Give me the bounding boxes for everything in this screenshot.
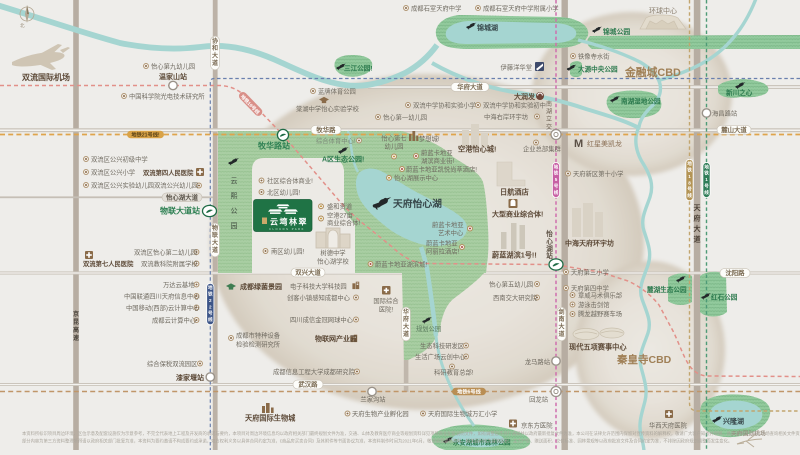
svg-text:蔚蓝卡地亚: 蔚蓝卡地亚 — [426, 239, 458, 248]
svg-text:联: 联 — [212, 231, 218, 239]
svg-text:树德中学: 树德中学 — [320, 248, 345, 257]
svg-text:速: 速 — [73, 334, 79, 342]
svg-text:蔚蓝卡地亚: 蔚蓝卡地亚 — [432, 220, 464, 229]
svg-text:怡心第五幼儿园: 怡心第五幼儿园 — [489, 280, 533, 289]
svg-text:大: 大 — [212, 52, 218, 60]
svg-text:综合体育中心!: 综合体育中心! — [316, 136, 356, 145]
svg-text:中国科学院光电技术研究所: 中国科学院光电技术研究所 — [129, 92, 205, 101]
svg-text:号: 号 — [687, 186, 692, 193]
svg-text:双流中学协和实验初中: 双流中学协和实验初中 — [483, 101, 546, 110]
svg-text:万达云基地: 万达云基地 — [163, 280, 195, 289]
svg-text:怡心湖展示中心: 怡心湖展示中心 — [394, 173, 439, 182]
svg-text:双流第七人民医院: 双流第七人民医院 — [83, 259, 134, 268]
svg-text:成都绿菌景园: 成都绿菌景园 — [240, 282, 282, 291]
svg-text:海昌路站: 海昌路站 — [712, 109, 738, 118]
svg-text:南区幼儿园!: 南区幼儿园! — [271, 247, 304, 256]
svg-text:创客小镇感知成都中心: 创客小镇感知成都中心 — [287, 293, 351, 302]
svg-text:线: 线 — [704, 189, 709, 196]
svg-text:艺术中心: 艺术中心 — [438, 228, 464, 237]
svg-text:大: 大 — [694, 224, 701, 233]
svg-text:云塆林翠: 云塆林翠 — [270, 217, 308, 227]
svg-text:科研教育总部!: 科研教育总部! — [434, 368, 474, 377]
svg-text:昆: 昆 — [73, 318, 79, 326]
svg-text:线: 线 — [687, 192, 692, 199]
svg-text:地: 地 — [208, 284, 213, 291]
svg-text:红石公园: 红石公园 — [711, 293, 738, 302]
svg-text:企业总部集群: 企业总部集群 — [523, 144, 561, 153]
svg-text:京: 京 — [73, 310, 79, 318]
svg-text:华西天府医院: 华西天府医院 — [649, 421, 687, 430]
svg-text:5: 5 — [555, 177, 558, 182]
svg-text:道: 道 — [403, 330, 409, 338]
svg-text:西南交大研究院: 西南交大研究院 — [493, 293, 538, 302]
svg-text:南: 南 — [558, 315, 564, 323]
svg-text:空港怡心城!: 空港怡心城! — [458, 145, 496, 154]
svg-text:公: 公 — [231, 207, 238, 215]
svg-text:铁: 铁 — [208, 291, 213, 298]
svg-text:1: 1 — [705, 177, 708, 182]
svg-text:怡心湖学校: 怡心湖学校 — [317, 257, 349, 266]
svg-text:站: 站 — [546, 251, 553, 260]
svg-text:成都石室天府中学附属小学: 成都石室天府中学附属小学 — [483, 4, 559, 13]
svg-text:铁像寺水街: 铁像寺水街 — [578, 52, 610, 61]
svg-text:1: 1 — [688, 174, 691, 179]
svg-text:大: 大 — [212, 239, 218, 247]
svg-text:牧华路: 牧华路 — [316, 125, 336, 134]
svg-text:南湖湿地公园: 南湖湿地公园 — [621, 97, 661, 106]
svg-text:红星美凯龙: 红星美凯龙 — [587, 139, 622, 148]
svg-text:大源中央公园: 大源中央公园 — [578, 65, 618, 74]
svg-text:锦城湖: 锦城湖 — [477, 23, 498, 32]
svg-text:麓湖生态公园: 麓湖生态公园 — [647, 285, 687, 294]
svg-text:湖: 湖 — [546, 244, 553, 253]
svg-text:双流区公兴初级中学: 双流区公兴初级中学 — [91, 155, 148, 164]
svg-text:空港27亩: 空港27亩 — [327, 211, 353, 220]
svg-text:剑: 剑 — [557, 308, 564, 316]
svg-text:双流教科院附属学校: 双流教科院附属学校 — [141, 259, 198, 268]
svg-text:天府国际生物城: 天府国际生物城 — [245, 414, 296, 423]
svg-text:地: 地 — [687, 160, 692, 167]
svg-text:华: 华 — [403, 308, 409, 316]
svg-text:新川之心: 新川之心 — [726, 88, 753, 97]
svg-text:8: 8 — [688, 180, 691, 185]
svg-text:游泳击剑馆: 游泳击剑馆 — [578, 300, 609, 309]
svg-text:2: 2 — [209, 298, 212, 303]
svg-text:地: 地 — [704, 163, 709, 170]
svg-text:怡心第九幼儿园: 怡心第九幼儿园 — [151, 62, 195, 71]
svg-text:CLOUDS PARK: CLOUDS PARK — [269, 227, 305, 231]
svg-text:南: 南 — [546, 100, 552, 108]
svg-text:章威马术俱乐部: 章威马术俱乐部 — [578, 291, 622, 300]
svg-text:京东方医院: 京东方医院 — [521, 421, 553, 430]
svg-text:龙马路站: 龙马路站 — [525, 357, 551, 366]
svg-text:部分内容为第三方资料整理所得请以政府相关部门批复为准，本资料: 部分内容为第三方资料整理所得请以政府相关部门批复为准，本资料为要约邀请不构成要约… — [22, 438, 732, 445]
svg-text:蔚蓝卡地亚凯悦尚萃酒店!: 蔚蓝卡地亚凯悦尚萃酒店! — [406, 165, 477, 174]
svg-text:社区综合体商业!: 社区综合体商业! — [267, 176, 313, 185]
svg-text:秦皇寺CBD: 秦皇寺CBD — [616, 353, 672, 366]
svg-text:天府第四中学: 天府第四中学 — [571, 284, 609, 293]
svg-text:蔚蓝湖滨1号!!: 蔚蓝湖滨1号!! — [492, 251, 537, 260]
svg-text:心: 心 — [546, 236, 553, 245]
svg-text:三江公园!: 三江公园! — [344, 64, 373, 73]
svg-text:伊藤洋华堂: 伊藤洋华堂 — [501, 63, 532, 72]
svg-text:道: 道 — [558, 330, 564, 338]
svg-text:地: 地 — [554, 163, 559, 170]
svg-text:金融城CBD: 金融城CBD — [624, 65, 681, 79]
svg-text:怡: 怡 — [546, 229, 553, 238]
svg-text:商业综合体!: 商业综合体! — [327, 218, 360, 227]
svg-text:道: 道 — [694, 235, 701, 244]
svg-text:天府生物产业孵化园: 天府生物产业孵化园 — [352, 409, 409, 418]
svg-text:物联网产业园: 物联网产业园 — [315, 334, 357, 343]
svg-text:地铁6号线: 地铁6号线 — [457, 387, 481, 395]
svg-text:号: 号 — [554, 183, 559, 190]
svg-text:蔚蓝卡地亚: 蔚蓝卡地亚 — [421, 148, 453, 157]
svg-text:生活广场云创中心: 生活广场云创中心 — [415, 352, 466, 361]
svg-text:梦想城!: 梦想城! — [419, 134, 440, 143]
svg-text:棠湖中学怡心实验学校: 棠湖中学怡心实验学校 — [296, 104, 360, 113]
svg-text:成都云计算中心: 成都云计算中心 — [152, 316, 197, 325]
svg-text:生态科技研发区: 生态科技研发区 — [420, 341, 464, 350]
svg-text:北区幼儿园!: 北区幼儿园! — [267, 188, 300, 197]
svg-text:怡心第七: 怡心第七 — [381, 134, 406, 143]
svg-text:漆家堰站: 漆家堰站 — [176, 373, 204, 382]
svg-text:云: 云 — [231, 177, 238, 185]
svg-text:铁: 铁 — [704, 170, 709, 177]
svg-text:检验检测研究所: 检验检测研究所 — [236, 340, 281, 349]
svg-text:本资料所标识项目周边环境、区位示意及配套设施仅为示意参考，不: 本资料所标识项目周边环境、区位示意及配套设施仅为示意参考，不完全代表地上工程及开… — [22, 430, 800, 437]
svg-text:双流区公兴小学: 双流区公兴小学 — [91, 168, 135, 177]
svg-text:成都石室天府中学: 成都石室天府中学 — [411, 4, 461, 13]
svg-text:大: 大 — [403, 323, 409, 331]
svg-text:兰家沟站: 兰家沟站 — [360, 395, 386, 404]
svg-text:线: 线 — [554, 189, 559, 196]
svg-text:双兴大道: 双兴大道 — [295, 268, 321, 277]
svg-text:天: 天 — [694, 204, 702, 212]
svg-text:医院!: 医院! — [379, 305, 394, 314]
svg-text:地铁21号线!: 地铁21号线! — [131, 130, 160, 138]
svg-text:中国联通四川天府信息中心: 中国联通四川天府信息中心 — [124, 292, 200, 301]
svg-text:蓝牌体育公园: 蓝牌体育公园 — [318, 87, 356, 96]
svg-text:牧华路站: 牧华路站 — [258, 141, 290, 151]
svg-text:双流国际机场: 双流国际机场 — [22, 72, 70, 82]
svg-text:双流中学协和实验小学: 双流中学协和实验小学 — [413, 101, 476, 110]
svg-text:日航酒店: 日航酒店 — [500, 188, 529, 197]
svg-text:中国移动(西部)云计算中心: 中国移动(西部)云计算中心 — [126, 303, 200, 312]
svg-text:号: 号 — [704, 183, 709, 190]
svg-text:锦城公园: 锦城公园 — [603, 27, 630, 36]
svg-text:物: 物 — [212, 224, 218, 232]
svg-text:北: 北 — [20, 22, 25, 29]
svg-text:麓山大道: 麓山大道 — [721, 125, 747, 134]
svg-text:双流区公兴实验幼儿园: 双流区公兴实验幼儿园 — [91, 181, 154, 190]
svg-text:四川成信金冠网球中心: 四川成信金冠网球中心 — [290, 315, 354, 324]
svg-text:成都市特种设备: 成都市特种设备 — [236, 331, 281, 340]
svg-text:环球中心: 环球中心 — [649, 6, 677, 15]
svg-text:熙: 熙 — [231, 192, 238, 200]
svg-text:M: M — [574, 138, 583, 150]
svg-text:A区生态公园!: A区生态公园! — [322, 155, 364, 164]
svg-text:电子科技大学科技园: 电子科技大学科技园 — [290, 282, 347, 291]
svg-text:交: 交 — [546, 123, 552, 131]
svg-text:铁: 铁 — [687, 167, 692, 174]
svg-text:道: 道 — [212, 246, 218, 254]
svg-text:湖滨商业街!: 湖滨商业街! — [421, 156, 454, 165]
svg-text:兴隆湖: 兴隆湖 — [723, 417, 744, 426]
svg-text:线: 线 — [208, 316, 213, 323]
svg-text:湖: 湖 — [546, 108, 552, 116]
svg-text:蔚蓝卡地亚湖滨城!: 蔚蓝卡地亚湖滨城! — [375, 260, 427, 269]
svg-text:现代五项赛事中心: 现代五项赛事中心 — [569, 343, 627, 352]
svg-text:成都信息工程大学成都研究院: 成都信息工程大学成都研究院 — [273, 367, 356, 376]
svg-text:双流公兴幼儿园: 双流公兴幼儿园 — [154, 181, 198, 190]
svg-text:园: 园 — [231, 222, 238, 230]
svg-text:天府国际生物城万汇小学: 天府国际生物城万汇小学 — [428, 409, 497, 418]
svg-text:温家山站: 温家山站 — [159, 72, 187, 81]
svg-text:铁: 铁 — [554, 170, 559, 177]
svg-text:号: 号 — [208, 310, 213, 317]
svg-text:阿丽拉酒店!: 阿丽拉酒店! — [426, 246, 459, 255]
svg-text:怡心湖大道: 怡心湖大道 — [166, 193, 199, 202]
svg-text:中海天府环宇坊: 中海天府环宇坊 — [565, 239, 614, 248]
svg-text:怡心第一幼儿园: 怡心第一幼儿园 — [383, 113, 427, 122]
svg-text:天府新区第十小学: 天府新区第十小学 — [573, 169, 623, 178]
svg-text:高: 高 — [73, 326, 79, 334]
svg-text:盛和资道: 盛和资道 — [327, 202, 353, 211]
svg-text:综合保税双流园区: 综合保税双流园区 — [147, 359, 197, 368]
svg-text:规划公园: 规划公园 — [416, 324, 441, 333]
svg-text:双流第四人民医院: 双流第四人民医院 — [143, 168, 194, 177]
svg-text:和: 和 — [211, 44, 218, 52]
svg-text:2: 2 — [209, 304, 212, 309]
svg-text:物联大道站: 物联大道站 — [160, 206, 200, 216]
svg-text:道: 道 — [212, 59, 218, 67]
svg-text:幼儿园: 幼儿园 — [385, 142, 404, 151]
svg-text:协: 协 — [212, 37, 218, 45]
svg-text:双流区怡心第二幼儿园: 双流区怡心第二幼儿园 — [134, 248, 197, 257]
svg-text:华府大道: 华府大道 — [457, 82, 483, 91]
svg-text:府: 府 — [403, 315, 409, 323]
svg-text:府: 府 — [694, 214, 701, 223]
svg-text:大润发: 大润发 — [514, 92, 536, 101]
svg-text:腾龙越野赛车场: 腾龙越野赛车场 — [578, 309, 622, 318]
svg-text:大: 大 — [558, 323, 564, 331]
svg-text:沈阳路: 沈阳路 — [725, 268, 745, 277]
svg-text:回龙站: 回龙站 — [529, 395, 549, 404]
svg-text:中海右岸环宇坊: 中海右岸环宇坊 — [484, 112, 529, 121]
svg-text:立: 立 — [546, 115, 552, 123]
svg-text:大型商业综合体!: 大型商业综合体! — [492, 210, 543, 219]
svg-text:武汉路: 武汉路 — [298, 380, 318, 389]
svg-text:天府怡心湖: 天府怡心湖 — [393, 197, 442, 210]
svg-text:国际综合: 国际综合 — [373, 296, 399, 305]
svg-text:天府第三小学: 天府第三小学 — [571, 268, 609, 277]
